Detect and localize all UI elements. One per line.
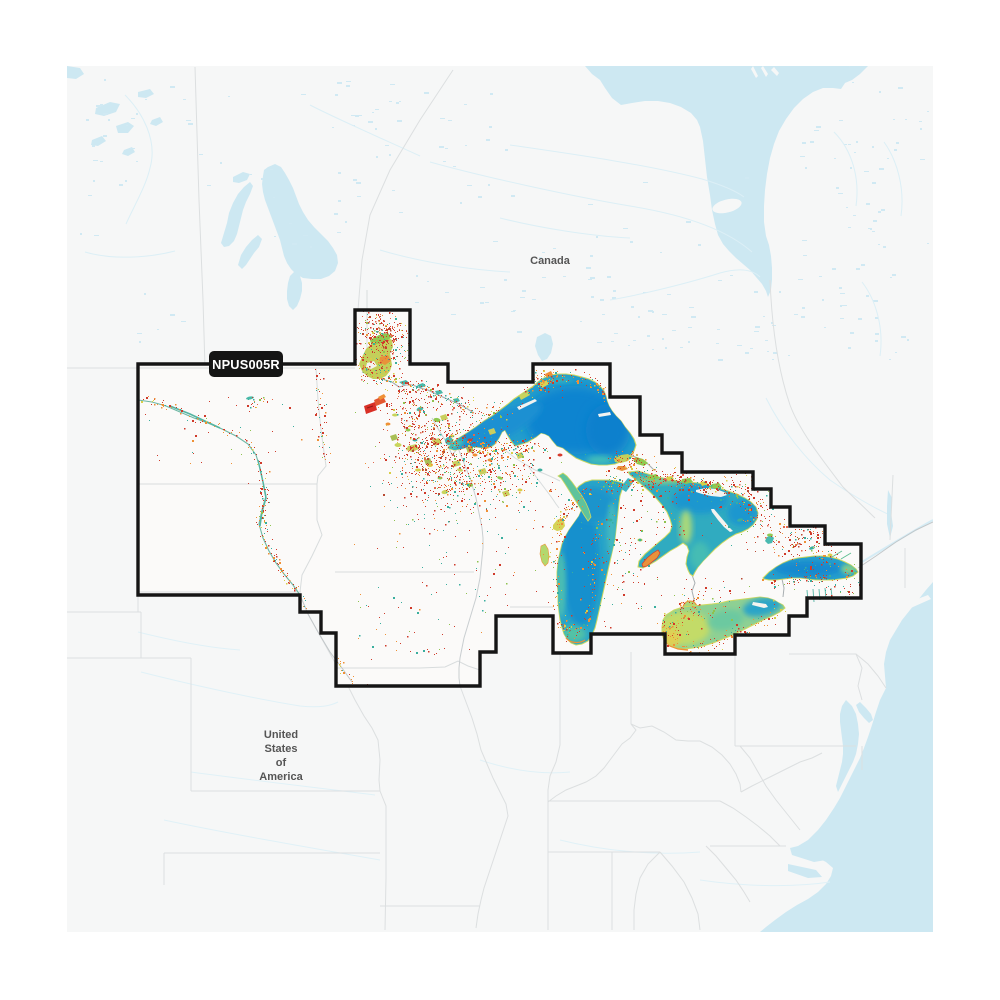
svg-text:United: United <box>264 729 298 741</box>
svg-text:NPUS005R: NPUS005R <box>212 357 280 372</box>
svg-text:States: States <box>264 743 297 755</box>
svg-text:Canada: Canada <box>530 255 571 267</box>
svg-text:of: of <box>276 757 287 769</box>
svg-text:America: America <box>259 771 303 783</box>
